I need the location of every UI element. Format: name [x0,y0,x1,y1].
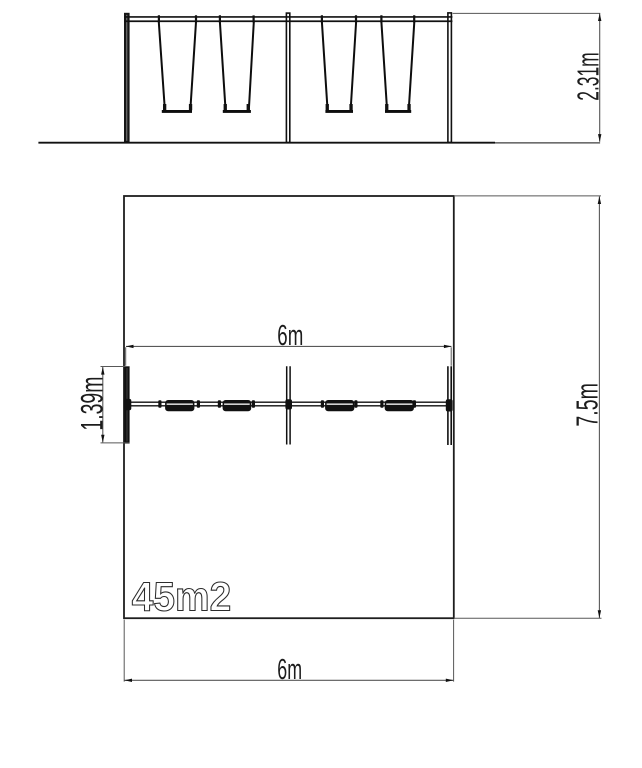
svg-text:6m: 6m [277,654,302,686]
svg-text:2.31m: 2.31m [571,52,606,100]
svg-text:1.39m: 1.39m [75,377,110,431]
svg-text:6m: 6m [277,320,303,352]
svg-text:45m2: 45m2 [132,574,231,620]
svg-text:7.5m: 7.5m [570,383,605,427]
